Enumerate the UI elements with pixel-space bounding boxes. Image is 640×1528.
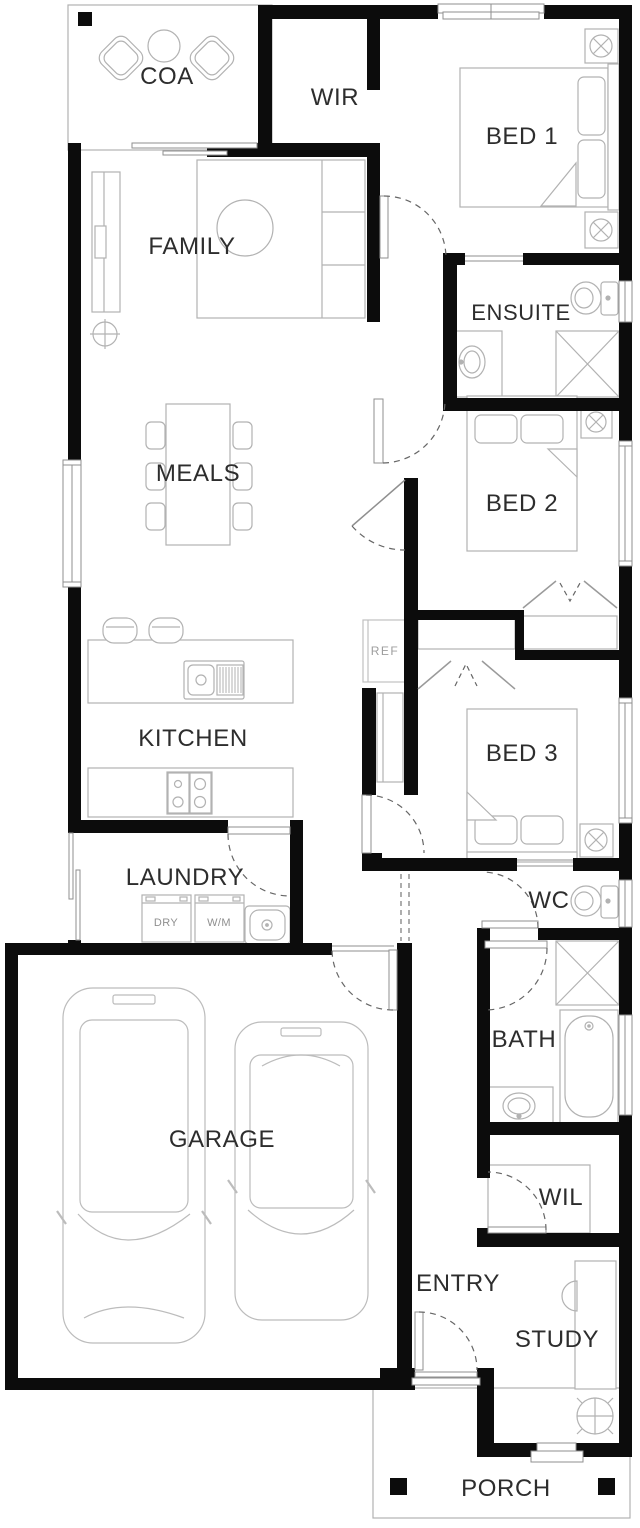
bath-door (485, 941, 547, 948)
coa-table-icon (148, 30, 180, 62)
ensuite-shower-icon (556, 331, 619, 397)
kitchen-sink-icon (184, 661, 244, 699)
coa-post (78, 12, 92, 26)
study-window (531, 1443, 583, 1462)
coffee-table-icon (217, 200, 273, 256)
coa-outline (68, 5, 272, 150)
bed3-bedside-icon (580, 824, 613, 857)
bed3-robe-icon (418, 618, 515, 649)
wc-window (619, 880, 632, 927)
kitchen-island-icon (88, 618, 293, 703)
ensuite-vanity-icon (454, 331, 502, 397)
bed3-window (619, 698, 632, 823)
bed1-window (438, 4, 544, 19)
laundry-tub-icon (245, 906, 290, 944)
bed2-bedside-icon (581, 407, 612, 438)
bed2-door-a (374, 399, 383, 463)
fridge-icon (363, 620, 407, 682)
bed3-door (362, 795, 371, 853)
ensuite-window (619, 281, 632, 322)
tv-unit-icon (92, 172, 120, 312)
wc-toilet-icon (571, 886, 618, 918)
bed3-robe-bifold (418, 661, 515, 689)
wil-door (488, 1227, 546, 1233)
porch-post-right (598, 1478, 615, 1495)
furniture (57, 29, 619, 1434)
washer-icon (195, 895, 244, 942)
coa-chairs-icon (96, 30, 238, 83)
kitchen-bench-icon (88, 768, 293, 817)
bed1-icon (460, 64, 619, 210)
bath-shower-icon (556, 941, 619, 1005)
porch-post-left (390, 1478, 407, 1495)
laundry-slider (69, 833, 80, 940)
study-fan-icon (577, 1398, 613, 1434)
wc-door (482, 921, 538, 928)
bed3-icon (467, 709, 577, 862)
bed2-window (619, 441, 632, 566)
bed2-icon (467, 396, 577, 551)
front-door (415, 1312, 423, 1370)
floor-plan: COA WIR BED 1 FAMILY ENSUITE MEALS BED 2… (0, 0, 640, 1528)
bed1-door (380, 196, 388, 258)
bath-window (619, 1015, 632, 1115)
garage-door (389, 950, 397, 1010)
bathtub-icon (560, 1010, 618, 1124)
pantry-icon (377, 693, 403, 782)
bed2-door-b (352, 480, 405, 526)
car-large-icon (57, 988, 211, 1343)
meals-window (63, 460, 81, 587)
front-door-sill (412, 1372, 480, 1385)
bath-vanity-icon (489, 1087, 553, 1125)
car-small-icon (228, 1022, 375, 1320)
family-symbol-icon (90, 319, 120, 349)
floor-plan-drawing (0, 0, 640, 1528)
bed2-robe-icon (523, 616, 617, 649)
wil-shelf-icon (488, 1165, 590, 1233)
hall-bulkhead (401, 874, 409, 941)
ensuite-toilet-icon (571, 282, 618, 315)
dryer-icon (142, 895, 191, 942)
meals-table-icon (146, 404, 252, 545)
study-desk-icon (575, 1261, 616, 1389)
bed2-robe-bifold (523, 581, 617, 608)
laundry-door (228, 827, 290, 834)
